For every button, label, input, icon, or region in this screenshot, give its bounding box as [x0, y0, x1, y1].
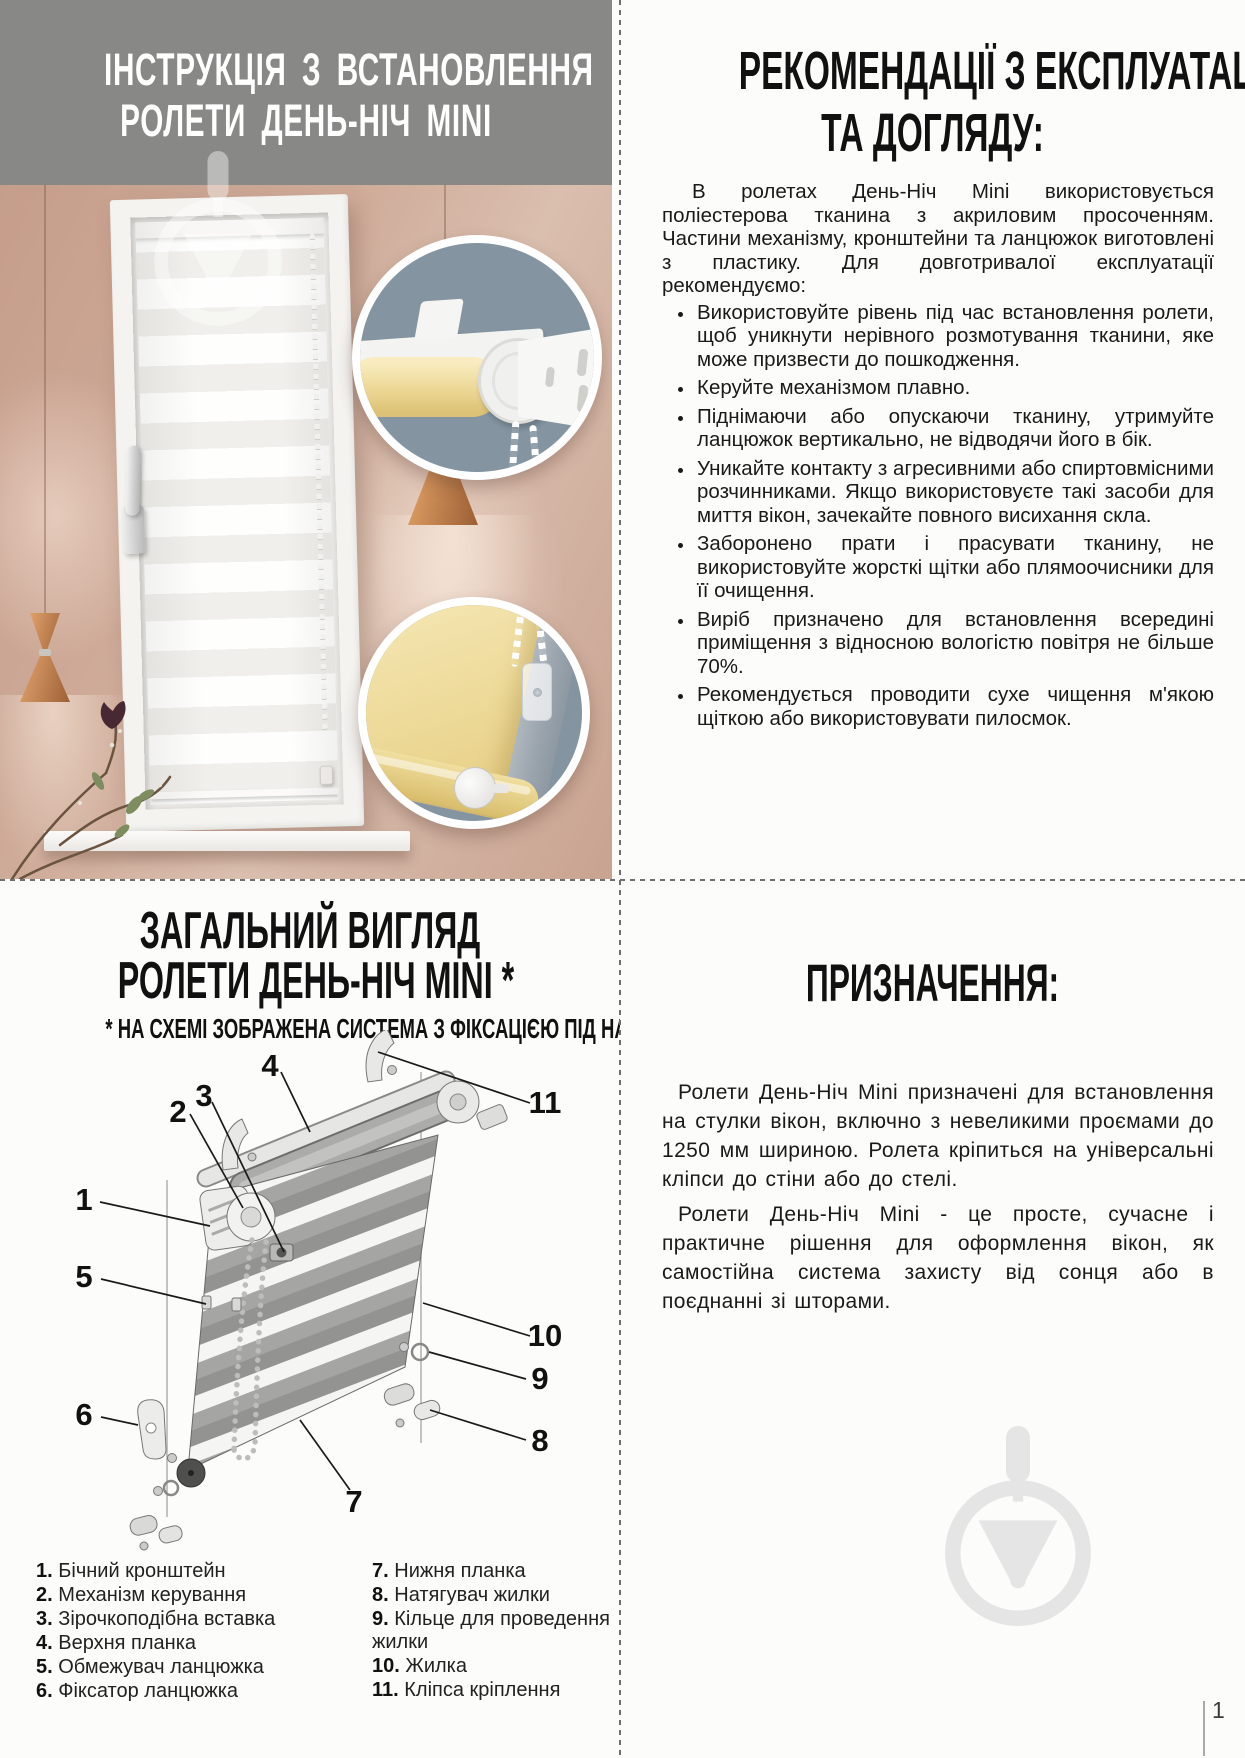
legend-column-left: 1. Бічний кронштейн2. Механізм керування… [36, 1560, 336, 1704]
product-photo [0, 185, 612, 879]
callout-7: 7 [345, 1484, 362, 1519]
section-recommendations: РЕКОМЕНДАЦІЇ З ЕКСПЛУАТАЦІЇ ТА ДОГЛЯДУ: … [620, 0, 1245, 879]
legend-item: 8. Натягувач жилки [372, 1584, 610, 1607]
detail-inset-tensioner [358, 597, 590, 829]
trowel-logo-watermark-icon [932, 1426, 1104, 1632]
section-installation: ІНСТРУКЦІЯ З ВСТАНОВЛЕННЯ РОЛЕТИ ДЕНЬ-НІ… [0, 0, 619, 879]
callout-4: 4 [261, 1048, 279, 1083]
recommendations-body: В ролетах День-Ніч Mini використовується… [662, 180, 1214, 735]
legend-item: 5. Обмежувач ланцюжка [36, 1656, 336, 1679]
callout-1: 1 [75, 1182, 92, 1217]
recommendation-item: Рекомендується проводити сухе чищення м'… [695, 683, 1214, 730]
page-number: 1 [1212, 1697, 1225, 1724]
bead-chain [529, 425, 542, 480]
recommendation-item: Виріб призначено для встановлення всеред… [695, 608, 1214, 679]
legend-item: 10. Жилка [372, 1655, 610, 1678]
wire-ring [412, 1344, 428, 1360]
purpose-paragraph-1: Ролети День-Ніч Mini призначені для вста… [662, 1078, 1214, 1194]
trowel-logo-watermark-icon [143, 151, 293, 331]
blind-bead-chain [310, 234, 328, 732]
purpose-body: Ролети День-Ніч Mini призначені для вста… [662, 1078, 1214, 1322]
recommendations-title: РЕКОМЕНДАЦІЇ З ЕКСПЛУАТАЦІЇ ТА ДОГЛЯДУ: [620, 40, 1245, 164]
installation-title: ІНСТРУКЦІЯ З ВСТАНОВЛЕННЯ РОЛЕТИ ДЕНЬ-НІ… [0, 0, 612, 146]
callout-6: 6 [75, 1397, 92, 1432]
installation-title-line1: ІНСТРУКЦІЯ З ВСТАНОВЛЕННЯ [104, 44, 508, 95]
recommendations-list: Використовуйте рівень під час встановлен… [662, 301, 1214, 731]
page-number-rule [1203, 1701, 1205, 1756]
callout-3: 3 [195, 1078, 212, 1113]
overview-title: ЗАГАЛЬНИЙ ВИГЛЯД РОЛЕТИ ДЕНЬ-НІЧ MINI * [0, 906, 620, 1006]
legend-item: 11. Кліпса кріплення [372, 1679, 610, 1702]
legend-item: 3. Зірочкоподібна вставка [36, 1608, 336, 1631]
legend-item: 2. Механізм керування [36, 1584, 336, 1607]
recommendation-item: Піднімаючи або опускаючи тканину, утриму… [695, 405, 1214, 452]
section-purpose: ПРИЗНАЧЕННЯ: Ролети День-Ніч Mini призна… [620, 880, 1245, 1758]
chain-fixator-clip [320, 766, 333, 785]
tension-disc [454, 767, 496, 809]
cord-tensioner [522, 663, 552, 721]
installation-header-band: ІНСТРУКЦІЯ З ВСТАНОВЛЕННЯ РОЛЕТИ ДЕНЬ-НІ… [0, 0, 612, 185]
callout-2: 2 [169, 1094, 186, 1129]
detail-inset-mechanism [352, 235, 602, 480]
callout-10: 10 [528, 1318, 562, 1353]
section-overview: ЗАГАЛЬНИЙ ВИГЛЯД РОЛЕТИ ДЕНЬ-НІЧ MINI * … [0, 880, 620, 1758]
recommendation-item: Використовуйте рівень під час встановлен… [695, 301, 1214, 372]
side-bracket-right [476, 1103, 509, 1130]
blind-exploded-diagram: 1 2 3 4 5 6 7 8 9 10 11 [38, 1030, 583, 1565]
callout-9: 9 [531, 1361, 548, 1396]
bead-chain [508, 421, 520, 480]
lamp-cord-left [44, 185, 46, 613]
installation-title-line2: РОЛЕТИ ДЕНЬ-НІЧ MINI [104, 95, 508, 146]
purpose-title: ПРИЗНАЧЕННЯ: [620, 956, 1245, 1012]
legend-item: 6. Фіксатор ланцюжка [36, 1680, 336, 1703]
callout-8: 8 [531, 1423, 548, 1458]
legend-item: 7. Нижня планка [372, 1560, 610, 1583]
mechanism-body [518, 327, 602, 431]
recommendation-item: Уникайте контакту з агресивними або спир… [695, 457, 1214, 528]
instruction-page: ІНСТРУКЦІЯ З ВСТАНОВЛЕННЯ РОЛЕТИ ДЕНЬ-НІ… [0, 0, 1245, 1758]
legend-item: 1. Бічний кронштейн [36, 1560, 336, 1583]
callout-11: 11 [529, 1085, 562, 1120]
recommendation-item: Керуйте механізмом плавно. [695, 376, 1214, 400]
purpose-paragraph-2: Ролети День-Ніч Mini - це просте, сучасн… [662, 1200, 1214, 1316]
legend-item: 4. Верхня планка [36, 1632, 336, 1655]
horizontal-divider [0, 879, 1245, 881]
tulip [101, 701, 126, 729]
decor-twigs [0, 685, 230, 879]
legend-column-right: 7. Нижня планка8. Натягувач жилки9. Кіль… [372, 1560, 610, 1703]
legend-item: 9. Кільце для проведення жилки [372, 1608, 610, 1654]
callout-5: 5 [75, 1259, 92, 1294]
recommendations-intro: В ролетах День-Ніч Mini використовується… [662, 180, 1214, 298]
wire-tensioner [382, 1382, 416, 1407]
window-handle [125, 446, 141, 516]
recommendation-item: Заборонено прати і прасувати тканину, не… [695, 532, 1214, 603]
